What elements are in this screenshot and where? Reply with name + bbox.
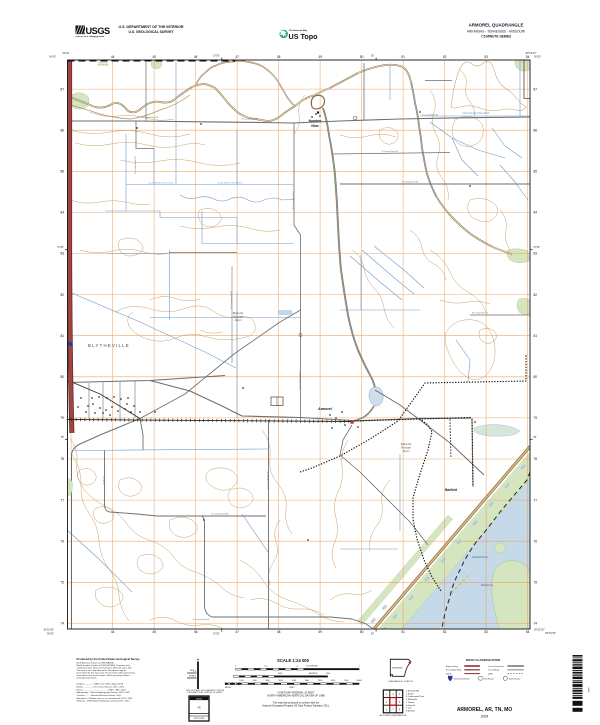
svg-text:ISBN: ISBN <box>587 688 589 693</box>
svg-text:Nine: Nine <box>311 124 318 128</box>
svg-text:E County Road 74: E County Road 74 <box>242 118 259 121</box>
svg-text:Blytheville: Blytheville <box>401 443 412 446</box>
svg-text:Hydrography....National Hydrog: Hydrography....National Hydrography Data… <box>77 691 131 694</box>
svg-text:North Number Nine Ditch: North Number Nine Ditch <box>463 112 490 115</box>
svg-text:ARKANSAS: ARKANSAS <box>98 64 110 67</box>
svg-text:4000: 4000 <box>279 680 283 682</box>
svg-text:NORTH AMERICAN VERTICAL DATUM: NORTH AMERICAN VERTICAL DATUM OF 1988 <box>267 694 325 698</box>
svg-text:47: 47 <box>235 630 239 634</box>
svg-text:46: 46 <box>194 630 198 634</box>
svg-text:45: 45 <box>152 630 156 634</box>
svg-text:10000: 10000 <box>356 680 361 682</box>
svg-text:83: 83 <box>60 252 64 256</box>
svg-text:E County Road 24: E County Road 24 <box>382 150 399 153</box>
svg-text:75: 75 <box>60 581 64 585</box>
svg-text:Ramp: Ramp <box>446 673 453 675</box>
svg-text:84: 84 <box>534 211 538 215</box>
svg-text:5000: 5000 <box>292 680 296 682</box>
svg-text:Contours...........National El: Contours...........National Elevation Da… <box>77 694 122 697</box>
svg-text:entering private lands.: entering private lands. <box>77 677 98 680</box>
svg-text:S County Road 525: S County Road 525 <box>267 470 270 488</box>
svg-text:3 Cottonwood Point: 3 Cottonwood Point <box>406 695 425 698</box>
svg-text:86: 86 <box>60 128 64 132</box>
svg-text:Number: Number <box>309 119 322 123</box>
svg-text:US Route: US Route <box>484 677 494 680</box>
svg-text:77: 77 <box>534 498 538 502</box>
svg-text:ARKANSAS: ARKANSAS <box>392 666 403 669</box>
svg-text:35°52'30": 35°52'30" <box>534 629 545 632</box>
svg-text:ARMOREL QUADRANGLE: ARMOREL QUADRANGLE <box>469 23 524 28</box>
svg-text:57′30″: 57′30″ <box>213 55 220 58</box>
svg-text:44: 44 <box>111 55 115 59</box>
svg-text:ADJOINING QUADRANGLES: ADJOINING QUADRANGLES <box>380 714 407 717</box>
svg-text:82: 82 <box>60 293 64 297</box>
svg-text:Wetlands....FWS National Wetla: Wetlands....FWS National Wetlands Invent… <box>77 700 131 703</box>
svg-text:6 Gosnell: 6 Gosnell <box>406 705 415 707</box>
svg-text:ROAD CLASSIFICATION: ROAD CLASSIFICATION <box>466 658 501 662</box>
svg-text:ARKANSAS - TENNESSEE - MISSOUR: ARKANSAS - TENNESSEE - MISSOURI <box>467 30 525 34</box>
svg-text:81: 81 <box>60 334 64 338</box>
svg-text:Produced by the United States: Produced by the United States Geological… <box>77 657 141 661</box>
svg-text:77: 77 <box>60 498 64 502</box>
svg-text:Imagery...................NAIP: Imagery...................NAIP, June 201… <box>77 683 124 686</box>
svg-text:E County Road 74: E County Road 74 <box>422 114 439 117</box>
svg-text:N County Road 521: N County Road 521 <box>134 155 137 173</box>
svg-text:E County Road 30: E County Road 30 <box>402 181 419 184</box>
svg-text:53: 53 <box>484 630 488 634</box>
svg-text:ARMOREL, AR, TN, MO: ARMOREL, AR, TN, MO <box>457 707 512 713</box>
svg-text:S CR 513: S CR 513 <box>104 475 106 485</box>
svg-text:SCALE 1:24 000: SCALE 1:24 000 <box>277 658 310 663</box>
svg-text:47: 47 <box>235 55 239 59</box>
svg-text:74: 74 <box>60 622 64 626</box>
svg-text:50: 50 <box>360 55 364 59</box>
svg-text:USGS: USGS <box>86 26 111 36</box>
svg-text:2024: 2024 <box>481 715 489 719</box>
svg-text:science for a changing world: science for a changing world <box>76 35 105 38</box>
svg-text:57′30″: 57′30″ <box>213 633 220 636</box>
svg-text:7.5-MINUTE SERIES: 7.5-MINUTE SERIES <box>481 35 511 39</box>
svg-text:AR: AR <box>197 707 201 710</box>
svg-text:Expressway: Expressway <box>446 665 459 668</box>
svg-text:46: 46 <box>194 55 198 59</box>
svg-text:E County Road 96: E County Road 96 <box>193 618 210 621</box>
svg-text:85: 85 <box>60 170 64 174</box>
svg-text:74: 74 <box>534 622 538 626</box>
svg-text:7000: 7000 <box>318 680 322 682</box>
svg-text:8000: 8000 <box>331 680 335 682</box>
svg-text:78: 78 <box>60 457 64 461</box>
svg-text:South Number Nine Ditch: South Number Nine Ditch <box>218 182 244 185</box>
svg-text:90°00': 90°00' <box>62 52 70 55</box>
svg-text:81: 81 <box>534 334 538 338</box>
svg-text:54: 54 <box>526 55 530 59</box>
svg-text:44: 44 <box>111 630 115 634</box>
svg-text:85: 85 <box>534 170 538 174</box>
svg-text:83: 83 <box>534 252 538 256</box>
svg-text:1 Burdette NE: 1 Burdette NE <box>406 690 420 693</box>
svg-text:N County Road 561: N County Road 561 <box>299 370 302 388</box>
svg-text:GRID ZONE: GRID ZONE <box>194 718 205 720</box>
svg-text:90°00': 90°00' <box>47 633 55 636</box>
svg-text:54: 54 <box>526 630 530 634</box>
svg-text:METERS: METERS <box>309 673 318 675</box>
svg-text:48: 48 <box>277 630 281 634</box>
svg-text:75: 75 <box>534 581 538 585</box>
svg-text:76: 76 <box>534 539 538 543</box>
svg-text:E County Road 52: E County Road 52 <box>472 312 489 315</box>
svg-text:North American Datum of 1983 (: North American Datum of 1983 (NAD83) <box>77 661 114 664</box>
svg-text:4WD: 4WD <box>488 673 493 675</box>
svg-text:49: 49 <box>318 630 322 634</box>
svg-text:World Geodetic System of 1984: World Geodetic System of 1984 (WGS84). P… <box>77 664 131 667</box>
svg-text:Armorel: Armorel <box>318 407 332 411</box>
svg-text:87: 87 <box>60 87 64 91</box>
svg-text:6000: 6000 <box>305 680 309 682</box>
svg-text:Local Road: Local Road <box>488 670 500 672</box>
svg-text:KILOMETER: KILOMETER <box>306 666 318 668</box>
svg-text:Boundaries....Multiple sources: Boundaries....Multiple sources; see meta… <box>77 697 134 700</box>
svg-text:MN: MN <box>190 670 194 672</box>
svg-text:Municipal: Municipal <box>401 448 411 450</box>
svg-text:Secondary Hwy: Secondary Hwy <box>446 669 462 672</box>
svg-text:36°00': 36°00' <box>49 56 57 59</box>
svg-text:5 Tomato: 5 Tomato <box>406 701 415 704</box>
svg-text:18 MILS: 18 MILS <box>189 676 197 678</box>
svg-text:South Number Nine Ditch: South Number Nine Ditch <box>149 182 175 185</box>
svg-text:76: 76 <box>60 539 64 543</box>
svg-text:57′30″: 57′30″ <box>534 246 541 249</box>
svg-text:79: 79 <box>534 416 538 420</box>
svg-text:Local Connector: Local Connector <box>488 665 504 668</box>
svg-text:N County Road 561: N County Road 561 <box>292 190 295 208</box>
svg-text:1000: 1000 <box>239 680 243 682</box>
svg-text:FEET: FEET <box>289 687 295 689</box>
svg-text:52: 52 <box>443 55 447 59</box>
svg-text:78: 78 <box>534 457 538 461</box>
svg-text:National Geospatial Program US: National Geospatial Program US Topo Prod… <box>263 705 330 708</box>
svg-text:U.S. DEPARTMENT OF THE INTERIO: U.S. DEPARTMENT OF THE INTERIOR <box>118 25 183 29</box>
svg-text:8 Barfield: 8 Barfield <box>406 709 416 712</box>
svg-text:80: 80 <box>60 375 64 379</box>
svg-text:79: 79 <box>60 416 64 420</box>
svg-text:Airport: Airport <box>403 450 410 453</box>
svg-text:55′: 55′ <box>371 55 375 58</box>
svg-text:84: 84 <box>60 211 64 215</box>
svg-text:Airport: Airport <box>235 319 242 322</box>
svg-text:N County Road 549: N County Road 549 <box>230 290 233 308</box>
svg-text:generalized for this map scale: generalized for this map scale. Private … <box>77 672 136 675</box>
svg-text:87: 87 <box>534 87 538 91</box>
svg-text:Names.........................: Names...................................… <box>77 689 127 691</box>
svg-text:53: 53 <box>484 55 488 59</box>
svg-text:9000: 9000 <box>344 680 348 682</box>
svg-text:DECLINATION AT CENTER OF SHEET: DECLINATION AT CENTER OF SHEET <box>187 691 223 694</box>
svg-text:Roads...................U.S. C: Roads...................U.S. Census Bure… <box>77 685 125 688</box>
svg-text:★: ★ <box>197 658 200 662</box>
svg-text:7 Dell: 7 Dell <box>406 708 412 710</box>
svg-text:Blytheville: Blytheville <box>233 312 244 315</box>
svg-text:Barfield Bend: Barfield Bend <box>472 556 488 559</box>
svg-text:35°52'30": 35°52'30" <box>43 629 54 632</box>
svg-text:E County Road 74: E County Road 74 <box>142 116 159 119</box>
svg-text:MILES: MILES <box>225 687 232 689</box>
svg-text:Barfield Ldg: Barfield Ldg <box>481 585 494 587</box>
svg-text:2 Steele: 2 Steele <box>406 692 414 695</box>
svg-text:W County Road 86: W County Road 86 <box>212 513 230 516</box>
svg-text:86: 86 <box>534 128 538 132</box>
svg-text:82: 82 <box>534 293 538 297</box>
svg-text:4 Blytheville: 4 Blytheville <box>406 698 418 701</box>
svg-text:US Topo: US Topo <box>289 32 319 41</box>
svg-text:Barfield: Barfield <box>445 488 457 492</box>
svg-text:80: 80 <box>534 375 538 379</box>
svg-text:89°52'30": 89°52'30" <box>545 632 556 635</box>
svg-text:BLYTHEVILLE: BLYTHEVILLE <box>88 343 130 348</box>
svg-text:reservations may not be shown.: reservations may not be shown. Obtain pe… <box>77 674 131 677</box>
svg-text:51: 51 <box>401 55 405 59</box>
svg-text:52: 52 <box>443 630 447 634</box>
svg-text:49: 49 <box>318 55 322 59</box>
svg-text:U.S. GEOLOGICAL SURVEY: U.S. GEOLOGICAL SURVEY <box>128 30 174 34</box>
svg-text:48: 48 <box>277 55 281 59</box>
svg-text:S County Road 599: S County Road 599 <box>471 445 474 463</box>
svg-text:55′: 55′ <box>371 633 375 636</box>
svg-text:36°00': 36°00' <box>534 56 542 59</box>
svg-text:This map is not a legal docume: This map is not a legal document. Bounda… <box>77 669 127 672</box>
svg-text:45: 45 <box>152 55 156 59</box>
svg-text:Interstate Route: Interstate Route <box>454 677 470 680</box>
svg-text:QUADRANGLE LOCATION: QUADRANGLE LOCATION <box>388 680 413 683</box>
svg-text:2000: 2000 <box>252 680 256 682</box>
svg-text:3000: 3000 <box>266 680 270 682</box>
svg-text:50: 50 <box>360 630 364 634</box>
svg-text:1 000-meter grid: Universal Tr: 1 000-meter grid: Universal Transverse M… <box>77 667 132 670</box>
svg-text:Municipal: Municipal <box>233 317 243 319</box>
svg-text:57′30″: 57′30″ <box>57 246 64 249</box>
svg-text:State Route: State Route <box>509 677 521 680</box>
svg-text:51: 51 <box>401 630 405 634</box>
svg-text:USGS: USGS <box>196 699 203 701</box>
